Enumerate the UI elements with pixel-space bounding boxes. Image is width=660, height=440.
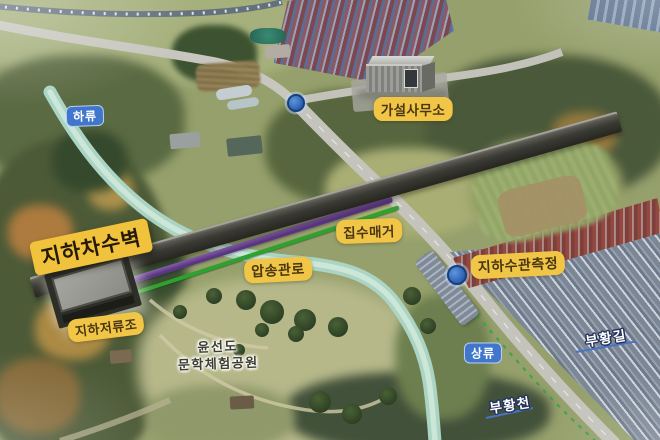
tree bbox=[342, 404, 362, 424]
dirt-road bbox=[60, 400, 170, 440]
tree bbox=[288, 326, 304, 342]
observation-marker-1 bbox=[287, 94, 305, 112]
site-office-3d bbox=[366, 56, 440, 100]
house-roof bbox=[265, 44, 291, 59]
tree bbox=[379, 387, 397, 405]
teal-roof-building bbox=[250, 28, 286, 44]
tree bbox=[403, 287, 421, 305]
site-office-side bbox=[422, 62, 435, 92]
label-park-name: 윤선도 문학체험공원 bbox=[177, 338, 259, 375]
aerial-site-diagram: 지하차수벽 가설사무소 집수매거 압송관로 지하수관측정 지하저류조 하류 상류… bbox=[0, 0, 660, 440]
label-site-office: 가설사무소 bbox=[374, 97, 453, 121]
tree bbox=[309, 391, 331, 413]
tree bbox=[260, 300, 284, 324]
label-pressure-pipeline: 압송관로 bbox=[244, 256, 313, 284]
label-upstream: 상류 bbox=[464, 343, 502, 364]
tree bbox=[420, 318, 436, 334]
tree bbox=[328, 317, 348, 337]
site-office-window bbox=[404, 69, 418, 88]
pavilion-roof bbox=[230, 395, 255, 409]
shed-roof bbox=[169, 132, 200, 150]
observation-marker-2 bbox=[447, 265, 467, 285]
pavilion-roof bbox=[109, 349, 132, 364]
label-monitoring-well: 지하수관측정 bbox=[470, 251, 565, 280]
park-name-line2: 문학체험공원 bbox=[178, 355, 259, 375]
tree bbox=[206, 288, 222, 304]
tree bbox=[173, 305, 187, 319]
guardrail bbox=[0, 2, 282, 14]
tree bbox=[236, 290, 256, 310]
warehouse-roof bbox=[226, 135, 263, 157]
label-downstream: 하류 bbox=[66, 105, 105, 127]
tree bbox=[255, 323, 269, 337]
label-collection-conduit: 집수매거 bbox=[336, 218, 402, 244]
